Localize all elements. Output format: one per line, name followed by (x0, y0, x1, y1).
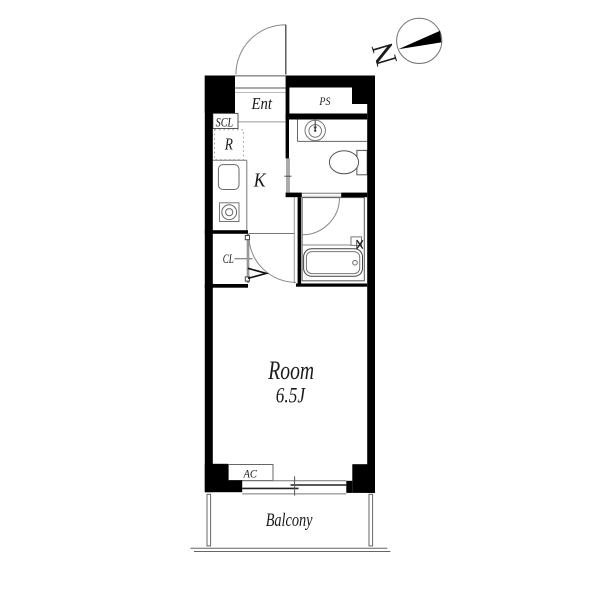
svg-text:Balcony: Balcony (266, 510, 313, 531)
svg-text:PS: PS (319, 96, 331, 108)
svg-text:R: R (224, 134, 233, 153)
svg-text:Ent: Ent (251, 94, 273, 113)
svg-text:K: K (253, 170, 267, 191)
svg-text:Room: Room (268, 356, 315, 385)
svg-text:SCL: SCL (216, 115, 234, 130)
svg-text:CL: CL (223, 251, 234, 266)
svg-text:6.5J: 6.5J (276, 383, 306, 408)
svg-text:AC: AC (243, 468, 258, 480)
